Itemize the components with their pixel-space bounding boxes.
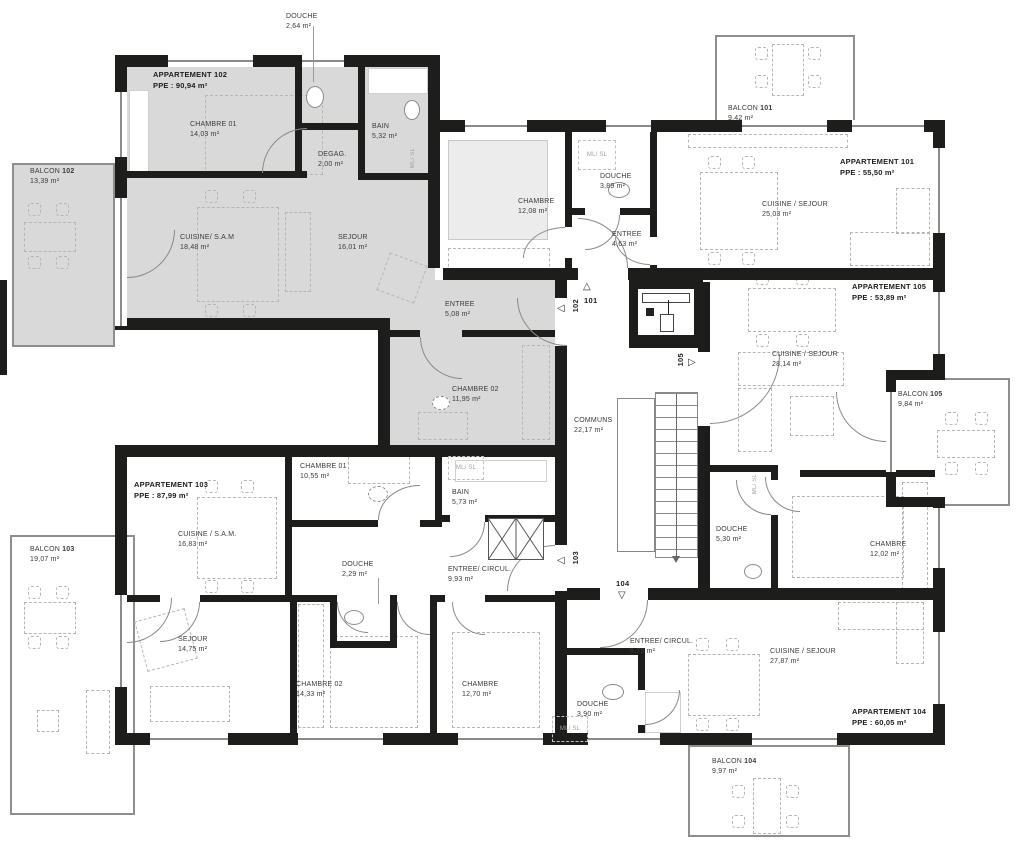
toilet [344, 610, 364, 625]
wall-segment [428, 132, 440, 268]
balcony-102-label: BALCON 102 13,39 m² [30, 167, 74, 187]
washer-dryer-marker: ML/ SL [578, 140, 616, 170]
wall-segment [428, 55, 440, 132]
washer-dryer-marker: ML/ SL [448, 456, 484, 480]
chair [56, 586, 69, 599]
apartment-101-title: APPARTEMENT 101PPE : 55,50 m² [840, 157, 914, 179]
wall-segment [800, 470, 935, 477]
room-label-entree-103: ENTREE/ CIRCUL.9,93 m² [448, 565, 511, 585]
toilet [306, 86, 324, 108]
chair [742, 156, 755, 169]
room-label-cuisine-103: CUISINE / S.A.M.16,83 m² [178, 530, 236, 550]
washer-dryer-marker: ML/ SL [752, 474, 758, 494]
wall-segment [420, 520, 442, 527]
balcony-105-label: BALCON 105 9,84 m² [898, 390, 942, 410]
desk-chair [432, 396, 450, 410]
room-label-bain-102: BAIN5,32 m² [372, 122, 397, 142]
chair [742, 252, 755, 265]
wall-segment [290, 595, 297, 733]
window [933, 148, 945, 233]
window [933, 292, 945, 354]
room-label-chambre-105: CHAMBRE12,02 m² [870, 540, 906, 560]
wall-segment [115, 445, 555, 457]
chair [796, 334, 809, 347]
window [302, 55, 344, 67]
balcony-stool [37, 710, 59, 732]
balcony-table [937, 430, 995, 458]
room-label-entree-102: ENTREE5,08 m² [445, 300, 475, 320]
room-label-sejour-102: SEJOUR16,01 m² [338, 233, 368, 253]
wall-segment [710, 465, 778, 472]
bathtub [368, 68, 428, 94]
balcony-101-label: BALCON 101 9,42 m² [728, 104, 772, 124]
entry-arrow-down-icon: ▽ [618, 591, 626, 601]
wall-segment [437, 595, 445, 602]
door-arc [450, 522, 485, 557]
balcony-door [115, 198, 127, 326]
wall-segment [435, 457, 442, 520]
room-label-degag-102: DEGAG.2,00 m² [318, 150, 346, 170]
balcony-door [115, 595, 127, 687]
wall-segment [330, 641, 397, 648]
sofa [850, 232, 930, 266]
sofa [150, 686, 230, 722]
chair [755, 75, 768, 88]
window [150, 733, 228, 745]
door-opening [698, 352, 710, 426]
balcony-table [772, 44, 804, 96]
balcony-103-label: BALCON 103 19,07 m² [30, 545, 74, 565]
chair [708, 252, 721, 265]
entry-arrow-left-icon: ◁ [557, 556, 565, 566]
wall-segment [565, 258, 572, 280]
apartment-104-title: APPARTEMENT 104PPE : 60,05 m² [852, 707, 926, 729]
apartment-103-title: APPARTEMENT 103PPE : 87,99 m² [134, 480, 208, 502]
room-label-douche-104: DOUCHE3,90 m² [577, 700, 609, 720]
entry-number-102: 102 [571, 299, 580, 312]
room-label-cuisine-101: CUISINE / SEJOUR25,03 m² [762, 200, 828, 220]
room-label-chambre-103: CHAMBRE12,70 m² [462, 680, 498, 700]
chair [243, 190, 256, 203]
chair [975, 412, 988, 425]
chair [696, 718, 709, 731]
chair [808, 47, 821, 60]
floor-plan: ML/ SL ML/ SL ML/ SL ML/ SL ML/ SL DOUCH… [0, 0, 1023, 853]
leader-line [378, 578, 379, 604]
wardrobe [298, 604, 324, 728]
window [933, 508, 945, 568]
room-label-cuisine-102: CUISINE/ S.A.M18,48 m² [180, 233, 234, 253]
wall-segment [200, 595, 290, 602]
dining-table [197, 207, 279, 302]
window [168, 55, 253, 67]
wall-segment [297, 595, 330, 602]
window [606, 120, 651, 132]
room-label-entree-104: ENTREE/ CIRCUL.5,79 m² [630, 637, 693, 657]
door-opening [555, 545, 567, 591]
leader-line [313, 26, 314, 82]
elevator-detail [646, 308, 654, 316]
chair [241, 480, 254, 493]
chair [732, 785, 745, 798]
window [588, 733, 660, 745]
bed [448, 140, 548, 240]
entry-number-103: 103 [571, 551, 580, 564]
chair [756, 334, 769, 347]
wall-segment [565, 132, 572, 227]
window [933, 632, 945, 704]
wall-segment [358, 173, 440, 180]
window [115, 92, 127, 157]
wall-segment [572, 208, 585, 215]
chair [786, 815, 799, 828]
wardrobe [522, 345, 550, 440]
bed [792, 496, 904, 578]
wall-segment [443, 268, 945, 280]
wall-segment [290, 520, 378, 527]
balcony-table [753, 778, 781, 834]
wall-segment [442, 515, 450, 522]
wall-segment [115, 55, 440, 67]
chair [241, 580, 254, 593]
chair [56, 256, 69, 269]
chair [945, 462, 958, 475]
wall-segment [295, 55, 302, 130]
chair [696, 638, 709, 651]
bed [330, 636, 418, 728]
chair [786, 785, 799, 798]
chair [945, 412, 958, 425]
dining-table [748, 288, 836, 332]
door-opening [578, 268, 628, 280]
entry-arrow-up-icon: △ [583, 282, 591, 292]
stair-direction-line [676, 394, 677, 558]
wall-segment [0, 280, 7, 375]
chair [28, 256, 41, 269]
room-label-douche-102: DOUCHE2,64 m² [286, 12, 318, 32]
balcony-door [752, 733, 837, 745]
chair [243, 304, 256, 317]
dining-table [688, 654, 760, 716]
balcony-table [24, 602, 76, 634]
room-label-sejour-103: SEJOUR14,75 m² [178, 635, 208, 655]
chair [28, 203, 41, 216]
window [852, 120, 924, 132]
entry-arrow-left-icon: ◁ [557, 304, 565, 314]
washer-dryer-marker: ML/ SL [410, 148, 416, 168]
sofa [285, 212, 311, 292]
door-opening [650, 237, 657, 265]
desk [418, 412, 468, 440]
room-label-entree-101: ENTREE4,63 m² [612, 230, 642, 250]
wall-segment [638, 725, 645, 733]
room-label-chambre02-102: CHAMBRE 0211,95 m² [452, 385, 499, 405]
toilet [744, 564, 762, 579]
chair [975, 462, 988, 475]
chair [726, 638, 739, 651]
chair [732, 815, 745, 828]
room-label-cuisine-105: CUISINE / SEJOUR28,14 m² [772, 350, 838, 370]
wall-segment [378, 318, 390, 457]
entry-number-105: 105 [676, 353, 685, 366]
balcony-104-label: BALCON 104 9,97 m² [712, 757, 756, 777]
apartment-102-title: APPARTEMENT 102PPE : 90,94 m² [153, 70, 227, 92]
room-label-chambre02-103: CHAMBRE 0214,33 m² [296, 680, 343, 700]
wall-segment [430, 595, 437, 733]
apartment-105-title: APPARTEMENT 105PPE : 53,89 m² [852, 282, 926, 304]
chair [205, 304, 218, 317]
room-label-chambre01-103: CHAMBRE 0110,55 m² [300, 462, 347, 482]
window [465, 120, 527, 132]
chair [726, 718, 739, 731]
room-label-douche-103: DOUCHE2,29 m² [342, 560, 374, 580]
chair [56, 203, 69, 216]
entry-number-101: 101 [584, 296, 597, 305]
wall-segment [485, 595, 555, 602]
wardrobe [129, 90, 149, 178]
window [298, 733, 383, 745]
duct-shaft [488, 518, 544, 560]
entry-number-104: 104 [616, 579, 629, 588]
room-label-cuisine-104: CUISINE / SEJOUR27,87 m² [770, 647, 836, 667]
door-arc [452, 602, 485, 635]
room-label-douche-101: DOUCHE3,89 m² [600, 172, 632, 192]
kitchen-counter [688, 134, 848, 148]
balcony-bench [86, 690, 110, 754]
wall-segment [115, 318, 390, 330]
room-label-bain-103: BAIN5,73 m² [452, 488, 477, 508]
chair [205, 580, 218, 593]
elevator-detail [660, 314, 674, 332]
balcony-102 [12, 163, 115, 347]
toilet [404, 100, 420, 120]
wall-segment [390, 330, 420, 337]
chair [808, 75, 821, 88]
balcony-table [24, 222, 76, 252]
sofa [896, 602, 924, 664]
chair [708, 156, 721, 169]
entry-arrow-right-icon: ▷ [688, 358, 696, 368]
room-label-communs: COMMUNS22,17 m² [574, 416, 612, 436]
chair [56, 636, 69, 649]
wall-segment [358, 55, 365, 180]
room-label-douche-105: DOUCHE5,30 m² [716, 525, 748, 545]
room-label-chambre-101: CHAMBRE12,08 m² [518, 197, 554, 217]
door-arc [836, 392, 886, 442]
chair [205, 190, 218, 203]
stair-direction-arrow-icon [672, 556, 680, 563]
room-label-chambre01-102: CHAMBRE 0114,03 m² [190, 120, 237, 140]
stair-well [617, 398, 655, 552]
chair [755, 47, 768, 60]
elevator-detail [642, 293, 690, 303]
door-arc [397, 602, 430, 635]
sofa [896, 188, 930, 234]
chair [28, 636, 41, 649]
window [458, 733, 543, 745]
toilet [602, 684, 624, 700]
balcony-door [886, 392, 896, 472]
coffee-table [790, 396, 834, 436]
chair [28, 586, 41, 599]
